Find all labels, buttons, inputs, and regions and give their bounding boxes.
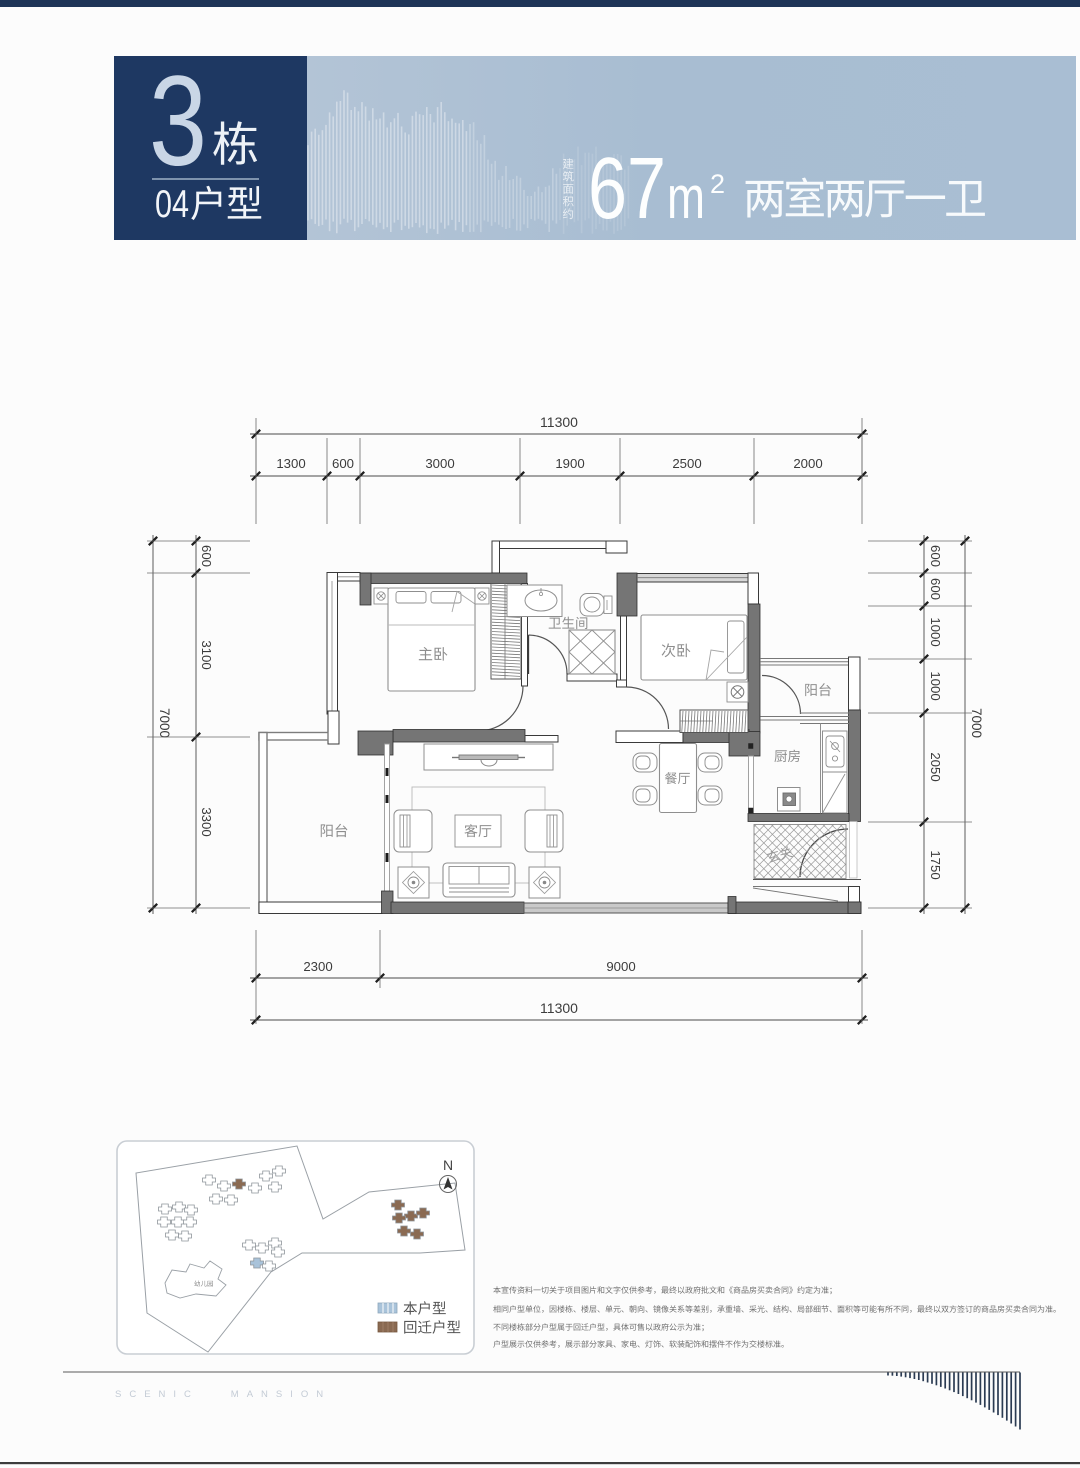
svg-text:3300: 3300	[199, 807, 214, 836]
svg-text:2000: 2000	[793, 456, 822, 471]
svg-text:600: 600	[199, 545, 214, 567]
svg-text:N: N	[443, 1157, 453, 1173]
svg-text:3: 3	[149, 50, 207, 193]
svg-text:04: 04	[155, 183, 189, 226]
svg-text:600: 600	[928, 545, 943, 567]
svg-text:SCENIC MANSION: SCENIC MANSION	[115, 1389, 331, 1400]
svg-text:11300: 11300	[540, 1000, 578, 1016]
svg-text:1750: 1750	[928, 850, 943, 879]
svg-text:3000: 3000	[425, 456, 454, 471]
svg-text:1900: 1900	[555, 456, 584, 471]
svg-text:1000: 1000	[928, 671, 943, 700]
svg-text:600: 600	[928, 578, 943, 600]
svg-text:2500: 2500	[672, 456, 701, 471]
svg-text:2050: 2050	[928, 752, 943, 781]
svg-text:1000: 1000	[928, 617, 943, 646]
svg-text:9000: 9000	[606, 959, 635, 974]
svg-text:7000: 7000	[157, 708, 172, 738]
svg-text:11300: 11300	[540, 414, 578, 430]
svg-text:1300: 1300	[276, 456, 305, 471]
svg-text:600: 600	[332, 456, 354, 471]
svg-text:3100: 3100	[199, 640, 214, 669]
svg-text:2: 2	[710, 169, 725, 199]
svg-text:7000: 7000	[969, 708, 984, 738]
svg-text:m: m	[667, 164, 705, 231]
svg-text:2300: 2300	[303, 959, 332, 974]
svg-text:67: 67	[588, 140, 666, 237]
